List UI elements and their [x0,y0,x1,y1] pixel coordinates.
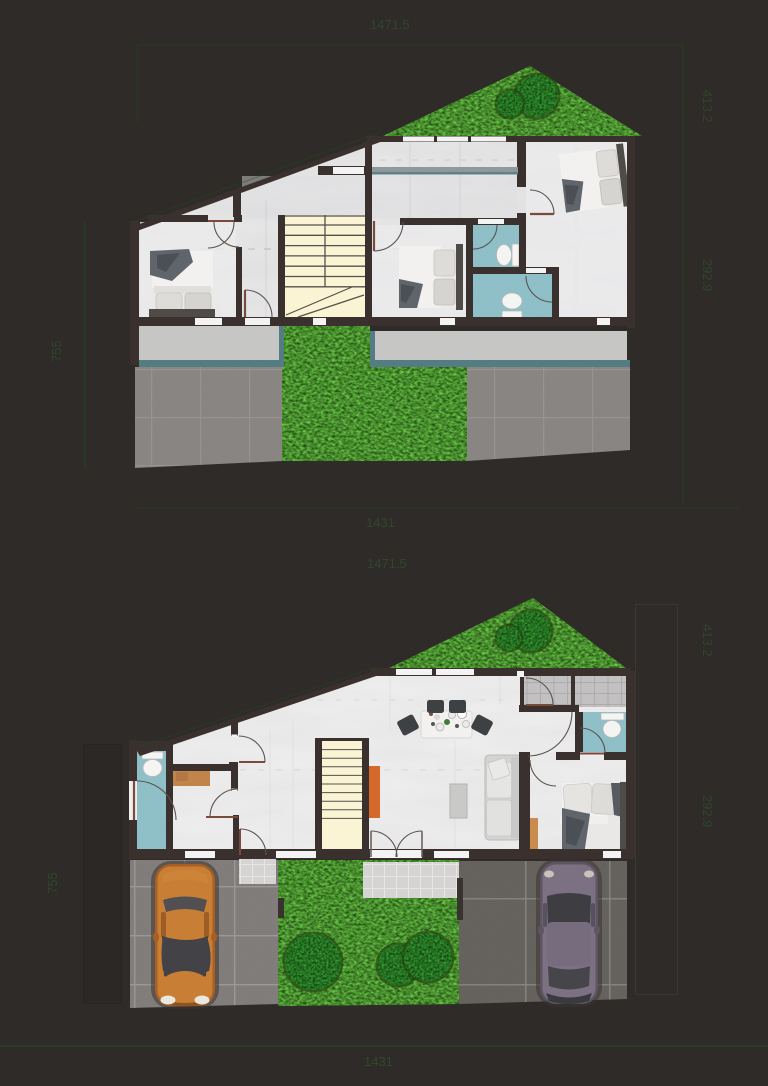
svg-text:1431: 1431 [366,515,395,530]
svg-text:1471.5: 1471.5 [370,17,410,32]
svg-text:292.9: 292.9 [700,795,715,828]
svg-text:413.2: 413.2 [700,90,715,123]
svg-text:413.2: 413.2 [700,624,715,657]
svg-text:755: 755 [49,340,64,362]
svg-text:1431: 1431 [364,1054,393,1069]
svg-text:1471.5: 1471.5 [367,556,407,571]
svg-text:755: 755 [45,872,60,894]
svg-text:292.9: 292.9 [700,259,715,292]
